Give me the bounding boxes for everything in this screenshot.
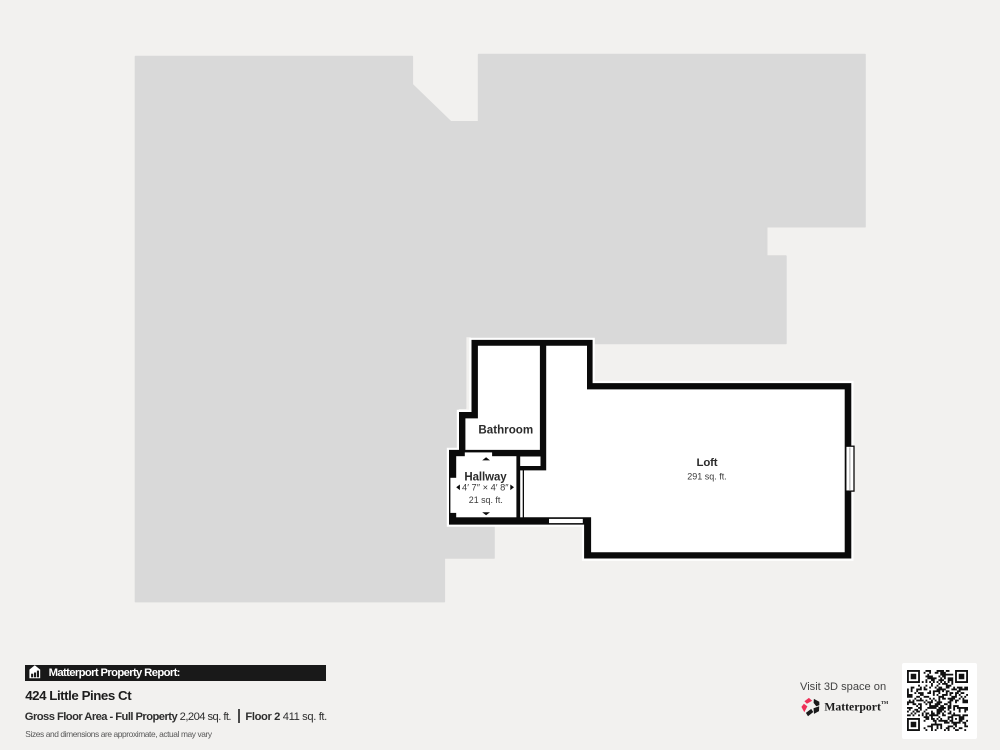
- svg-text:21 sq. ft.: 21 sq. ft.: [469, 495, 503, 505]
- svg-text:291 sq. ft.: 291 sq. ft.: [687, 472, 727, 482]
- svg-text:Loft: Loft: [697, 457, 718, 469]
- svg-text:4′ 7″ × 4′ 8″: 4′ 7″ × 4′ 8″: [462, 483, 509, 493]
- svg-text:Bathroom: Bathroom: [478, 424, 533, 437]
